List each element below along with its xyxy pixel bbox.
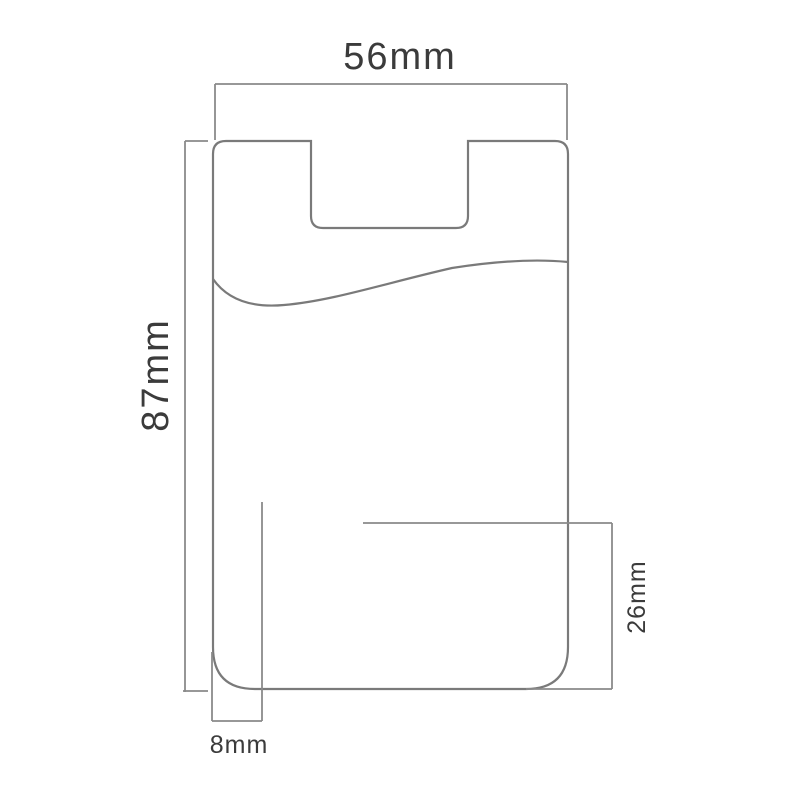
card-holder-outline (213, 141, 568, 689)
pocket-opening-curve (213, 261, 568, 306)
dimension-diagram: 56mm 87mm 8mm 26mm (0, 0, 800, 800)
dimension-bottom-inset-label: 8mm (210, 731, 269, 759)
dimension-bottom-inset: 8mm (210, 502, 269, 759)
dimension-width-label: 56mm (343, 36, 457, 78)
dimension-height: 87mm (135, 141, 208, 692)
dimension-width: 56mm (215, 36, 567, 140)
dimension-height-label: 87mm (135, 318, 177, 432)
diagram-canvas: 56mm 87mm 8mm 26mm (0, 0, 800, 800)
dimension-pocket-height: 26mm (363, 523, 651, 689)
dimension-pocket-height-label: 26mm (623, 560, 651, 633)
